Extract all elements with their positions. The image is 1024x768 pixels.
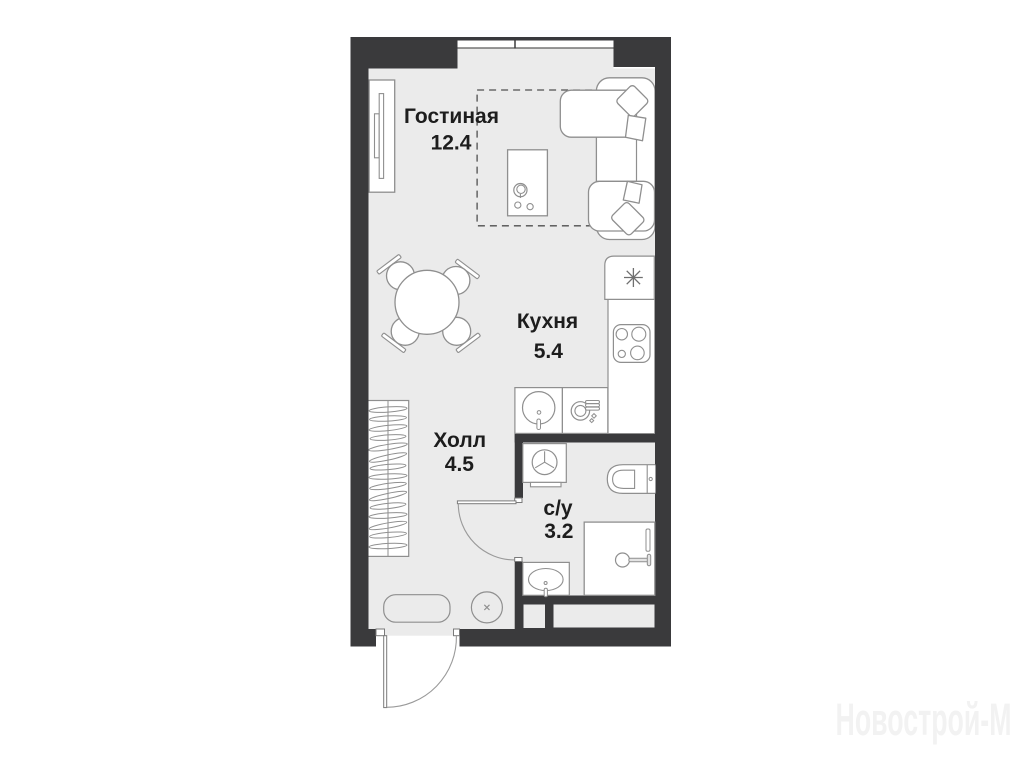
svg-text:Гостиная: Гостиная	[404, 105, 499, 128]
svg-text:5.4: 5.4	[534, 340, 564, 363]
svg-text:3.2: 3.2	[544, 520, 573, 543]
svg-text:Новострой-М: Новострой-М	[836, 694, 1012, 745]
svg-text:4.5: 4.5	[445, 453, 475, 476]
svg-text:с/у: с/у	[543, 497, 573, 520]
svg-text:12.4: 12.4	[431, 132, 472, 155]
svg-text:Холл: Холл	[433, 429, 486, 452]
svg-text:Кухня: Кухня	[517, 310, 578, 333]
